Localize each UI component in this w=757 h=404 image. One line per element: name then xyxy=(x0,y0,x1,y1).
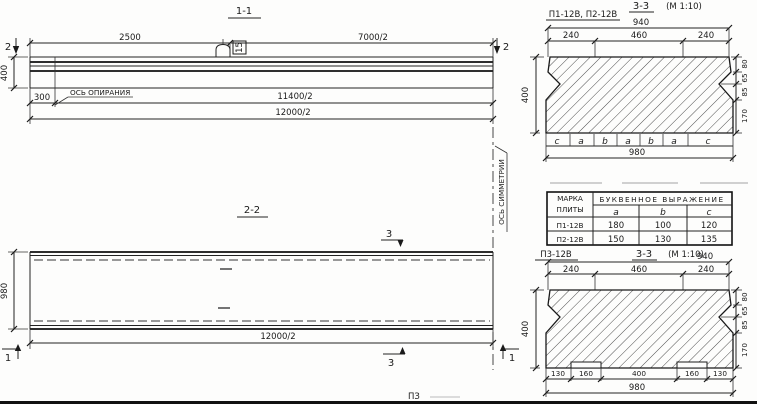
s33b-total-dim: 980 xyxy=(543,383,736,396)
section-2-2: 2-2 3 980 xyxy=(0,127,519,370)
dim-85: 85 xyxy=(740,320,749,329)
s11-cut-marker-left: 2 xyxy=(5,38,19,54)
row1-b: 100 xyxy=(655,221,671,231)
dim-400: 400 xyxy=(0,65,10,81)
plate-parameter-table: МАРКА ПЛИТЫ БУКВЕННОЕ ВЫРАЖЕНИЕ a b c П1… xyxy=(547,192,732,245)
dim-460: 460 xyxy=(631,31,647,41)
bottom-groove-right xyxy=(677,362,707,368)
edge-artifact-text: ПЗ xyxy=(408,392,420,402)
dim-12000-2: 12000/2 xyxy=(275,108,310,118)
row2-a: 150 xyxy=(608,235,624,245)
dim-2500: 2500 xyxy=(119,33,141,43)
drawing-canvas: 1-1 2500 7000/2 2 2 xyxy=(0,0,757,404)
section-1-1: 1-1 2500 7000/2 2 2 xyxy=(0,6,509,124)
dim-980: 980 xyxy=(629,383,645,393)
slab-plan xyxy=(30,252,493,329)
s11-height-dim: 400 xyxy=(0,54,28,91)
dim-160-l: 160 xyxy=(579,369,593,378)
s33b-seg-dim: 240 460 240 xyxy=(545,262,732,290)
plate-label-p3: П3-12В xyxy=(540,250,572,260)
s22-cut-marker-3-bottom: 3 xyxy=(383,347,406,369)
dim-170: 170 xyxy=(740,343,749,357)
dim-160-r: 160 xyxy=(685,369,699,378)
dim-130-r: 130 xyxy=(713,369,727,378)
section-3-3-p3: П3-12В 3-3 (М 1:10) 940 240 460 240 xyxy=(521,249,749,397)
dim-80: 80 xyxy=(740,292,749,302)
cut-marker-3-top: 3 xyxy=(386,229,392,240)
dim-940: 940 xyxy=(697,252,713,262)
cut-marker-1-left: 1 xyxy=(5,353,11,364)
section-1-1-title: 1-1 xyxy=(236,6,252,17)
plate-label-p1-p2: П1-12В, П2-12В xyxy=(549,10,618,20)
loop-tag: 15 xyxy=(235,42,245,53)
section-3-3-title: 3-3 xyxy=(633,1,649,12)
s33a-seg-dim: 240 460 240 xyxy=(545,28,732,57)
cross-section-p1-p2 xyxy=(546,57,733,133)
dim-80: 80 xyxy=(740,59,749,69)
table-header-marka: МАРКА xyxy=(557,194,583,203)
s22-bottom-dim: 12000/2 xyxy=(27,329,496,349)
row2-c: 135 xyxy=(701,235,717,245)
dim-240-left: 240 xyxy=(563,31,579,41)
dim-460: 460 xyxy=(631,265,647,275)
dim-170: 170 xyxy=(740,109,749,123)
dim-130-l: 130 xyxy=(551,369,565,378)
dim-85: 85 xyxy=(740,87,749,96)
dim-65: 65 xyxy=(740,306,749,315)
row1-c: 120 xyxy=(701,221,717,231)
table-header-expression: БУКВЕННОЕ ВЫРАЖЕНИЕ xyxy=(599,195,724,204)
row1-mark: П1-12В xyxy=(556,221,583,230)
cut-marker-2-left: 2 xyxy=(5,42,11,53)
table-row: П1-12В 180 100 120 xyxy=(556,221,717,231)
s33a-letter-row: c a b a b a c xyxy=(546,134,733,147)
dim-11400-2: 11400/2 xyxy=(277,92,312,102)
table-col-a: a xyxy=(613,208,619,218)
cut-marker-3-bottom: 3 xyxy=(388,358,394,369)
support-axis-callout: ОСЬ ОПИРАНИЯ xyxy=(55,88,133,105)
s22-height-dim: 980 xyxy=(0,249,28,332)
dim-400: 400 xyxy=(521,87,531,103)
s22-cut-marker-3-top: 3 xyxy=(381,229,404,247)
letter-a3: a xyxy=(671,137,677,147)
dim-300: 300 xyxy=(34,93,50,103)
letter-a1: a xyxy=(578,137,584,147)
letter-b1: b xyxy=(602,137,608,147)
dim-12000-2: 12000/2 xyxy=(260,332,295,342)
row2-mark: П2-12В xyxy=(556,235,583,244)
row2-b: 130 xyxy=(655,235,671,245)
dim-65: 65 xyxy=(740,73,749,82)
dim-240-right: 240 xyxy=(698,31,714,41)
table-col-b: b xyxy=(660,208,666,218)
s22-cut-marker-1-right: 1 xyxy=(500,344,519,364)
dim-980: 980 xyxy=(629,148,645,158)
dim-7000-2: 7000/2 xyxy=(358,33,388,43)
dim-400: 400 xyxy=(521,321,531,337)
dim-980: 980 xyxy=(0,283,10,299)
section-2-2-title: 2-2 xyxy=(244,205,260,216)
engineering-drawing-sheet: 1-1 2500 7000/2 2 2 xyxy=(0,0,757,404)
row1-a: 180 xyxy=(608,221,624,231)
dim-940: 940 xyxy=(633,18,649,28)
s11-top-dim: 2500 7000/2 xyxy=(27,33,496,57)
symmetry-axis: ОСЬ СИММЕТРИИ xyxy=(493,127,507,370)
section-3-3-scale: (М 1:10) xyxy=(666,2,702,12)
s33b-height-dim: 400 xyxy=(521,287,544,371)
s33a-height-dim: 400 xyxy=(521,54,544,136)
symmetry-axis-label: ОСЬ СИММЕТРИИ xyxy=(497,159,506,225)
letter-c1: c xyxy=(555,137,560,147)
beam-elevation xyxy=(30,57,493,88)
dim-240-right: 240 xyxy=(698,265,714,275)
table-col-c: c xyxy=(707,208,712,218)
table-row: П2-12В 150 130 135 xyxy=(556,235,717,245)
bottom-groove-left xyxy=(571,362,601,368)
cross-section-p3 xyxy=(546,290,733,368)
cut-marker-2-right: 2 xyxy=(503,42,509,53)
letter-a2: a xyxy=(625,137,631,147)
section-3-3-title: 3-3 xyxy=(636,249,652,260)
letter-c2: c xyxy=(706,137,711,147)
section-3-3-p1-p2: П1-12В, П2-12В 3-3 (М 1:10) 940 240 460 … xyxy=(521,1,749,162)
dim-400-mid: 400 xyxy=(632,369,646,378)
letter-b2: b xyxy=(648,137,654,147)
support-axis-label: ОСЬ ОПИРАНИЯ xyxy=(70,88,130,97)
s22-cut-marker-1-left: 1 xyxy=(2,344,21,364)
dim-240-left: 240 xyxy=(563,265,579,275)
cut-marker-1-right: 1 xyxy=(509,353,515,364)
table-header-plity: ПЛИТЫ xyxy=(556,205,583,214)
